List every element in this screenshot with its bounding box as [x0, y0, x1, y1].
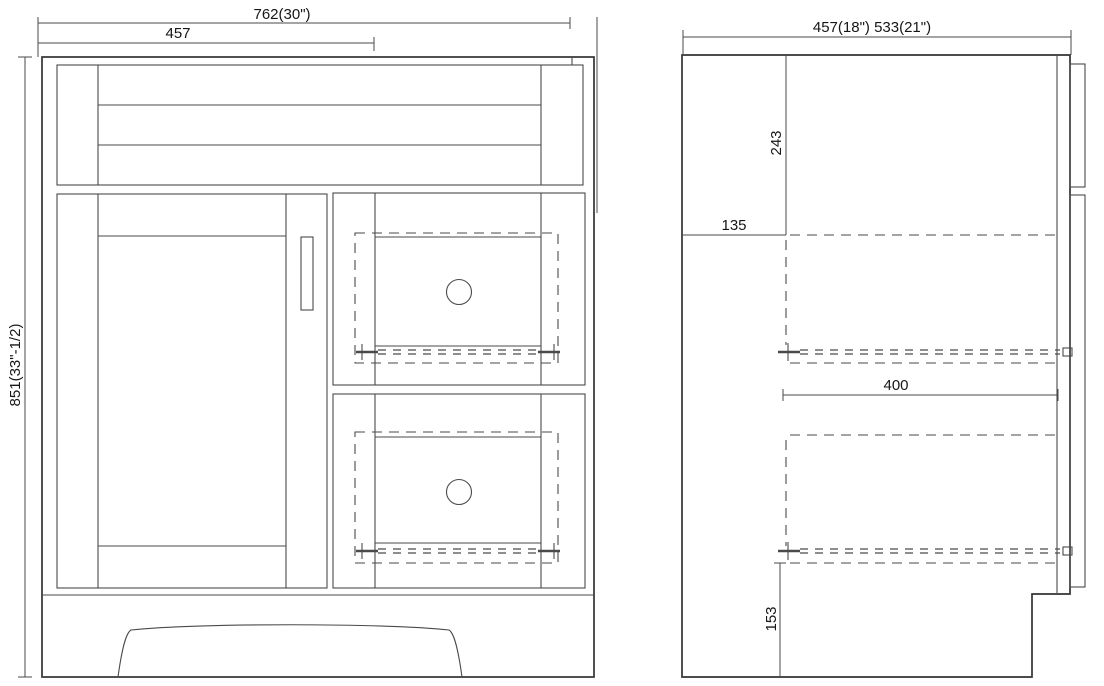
- front-dim-width: 762(30"): [38, 6, 597, 213]
- vanity-technical-drawing: 762(30") 457 851(33"-1/2): [0, 0, 1104, 686]
- front-drawer-bottom: [333, 394, 585, 588]
- side-panel-shape: [682, 55, 1070, 677]
- side-dim-top-to-drawer: 243: [768, 55, 786, 235]
- side-dim-bottom-offset: 153: [763, 563, 786, 677]
- side-view: 457(18") 533(21") 243 135 400 153: [682, 19, 1085, 677]
- side-panel-outline: [682, 55, 1085, 677]
- front-dim-height: 851(33"-1/2): [7, 57, 32, 677]
- side-dim-400-label: 400: [883, 377, 908, 394]
- front-drawer-top-hidden-box: [355, 233, 558, 363]
- front-door: [57, 194, 327, 588]
- front-view: 762(30") 457 851(33"-1/2): [7, 6, 597, 677]
- front-top-frame-rect: [57, 65, 583, 185]
- front-dim-door-width-label: 457: [165, 25, 190, 42]
- front-toekick-arch: [118, 625, 462, 677]
- side-dim-depth-label: 457(18") 533(21"): [813, 19, 931, 36]
- front-drawer-top-knob: [447, 280, 472, 305]
- front-door-handle: [301, 237, 313, 310]
- front-cabinet-outline: [42, 57, 594, 677]
- side-dim-135-label: 135: [721, 217, 746, 234]
- side-dim-153-label: 153: [763, 606, 780, 631]
- side-hidden-drawer-bottom: [778, 435, 1072, 563]
- side-dim-depth: 457(18") 533(21"): [683, 19, 1071, 55]
- side-dim-slide-length: 400: [783, 377, 1058, 401]
- front-drawer-bottom-knob: [447, 480, 472, 505]
- front-dim-door-width: 457: [38, 25, 374, 51]
- front-drawer-top: [333, 193, 585, 385]
- front-drawer-bottom-front: [333, 394, 585, 588]
- side-false-front-profile: [1070, 64, 1085, 187]
- side-dim-back-offset: 135: [682, 217, 786, 235]
- front-dim-width-label: 762(30"): [253, 6, 310, 23]
- drawing-canvas: 762(30") 457 851(33"-1/2): [0, 0, 1104, 686]
- front-top-frame: [57, 65, 583, 185]
- side-hidden-drawer-top: [778, 235, 1072, 363]
- side-door-profile: [1070, 195, 1085, 587]
- front-cabinet-body: [42, 57, 594, 677]
- side-dim-243-label: 243: [768, 130, 785, 155]
- front-drawer-top-front: [333, 193, 585, 385]
- front-dim-height-label: 851(33"-1/2): [7, 324, 24, 407]
